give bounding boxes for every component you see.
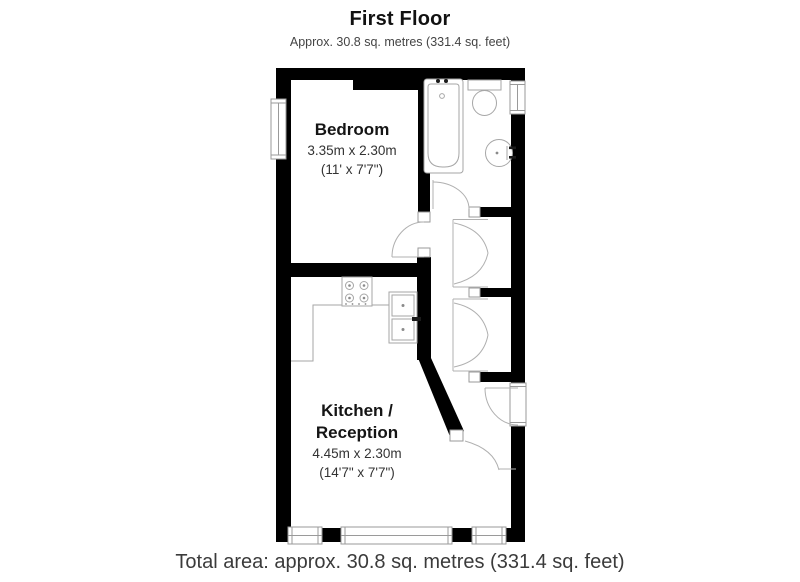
- top-wall: [276, 68, 525, 80]
- entry-side-wall-stub: [480, 372, 511, 382]
- kitchen-door-icon: [465, 441, 516, 470]
- sink-unit-icon: [389, 292, 421, 343]
- toilet-icon: [468, 80, 501, 116]
- jamb: [418, 248, 430, 257]
- bathroom-door-icon: [433, 180, 469, 209]
- reception-window-middle-icon: [341, 527, 452, 544]
- bedroom-name: Bedroom: [252, 119, 452, 141]
- kitchen-fixtures: [291, 277, 421, 361]
- kitchen-dimensions-imperial: (14'7" x 7'7"): [257, 463, 457, 482]
- entry-door-icon: [485, 383, 526, 426]
- kitchen-name-line2: Reception: [257, 422, 457, 444]
- hob-icon: [342, 277, 372, 306]
- bedroom-kitchen-divider-wall: [291, 263, 418, 277]
- kitchen-dimensions-metric: 4.45m x 2.30m: [257, 444, 457, 463]
- jamb: [469, 372, 480, 382]
- reception-window-right-icon: [472, 527, 506, 544]
- kitchen-reception-label: Kitchen / Reception 4.45m x 2.30m (14'7"…: [257, 400, 457, 482]
- cupboard-divider-stub: [480, 288, 511, 297]
- floorplan-page: First Floor Approx. 30.8 sq. metres (331…: [0, 0, 800, 582]
- hall-cupboard-doors-lower-icon: [453, 299, 488, 371]
- total-area-label: Total area: approx. 30.8 sq. metres (331…: [0, 551, 800, 574]
- jamb: [418, 212, 430, 222]
- hall-kitchen-divider-wall: [417, 257, 431, 360]
- bedroom-dimensions-metric: 3.35m x 2.30m: [252, 141, 452, 160]
- bathroom-window-icon: [510, 81, 525, 114]
- floorplan-drawing: [0, 0, 800, 582]
- hall-cupboard-doors-icon: [453, 220, 488, 288]
- reception-window-left-icon: [288, 527, 322, 544]
- bathroom-bottom-wall-stub: [480, 207, 511, 217]
- kitchen-name-line1: Kitchen /: [257, 400, 457, 422]
- bedroom-label: Bedroom 3.35m x 2.30m (11' x 7'7"): [252, 119, 452, 179]
- bedroom-dimensions-imperial: (11' x 7'7"): [252, 160, 452, 179]
- right-wall: [511, 68, 525, 542]
- jamb: [469, 288, 480, 297]
- jamb: [469, 207, 480, 217]
- counter-outline: [291, 305, 390, 361]
